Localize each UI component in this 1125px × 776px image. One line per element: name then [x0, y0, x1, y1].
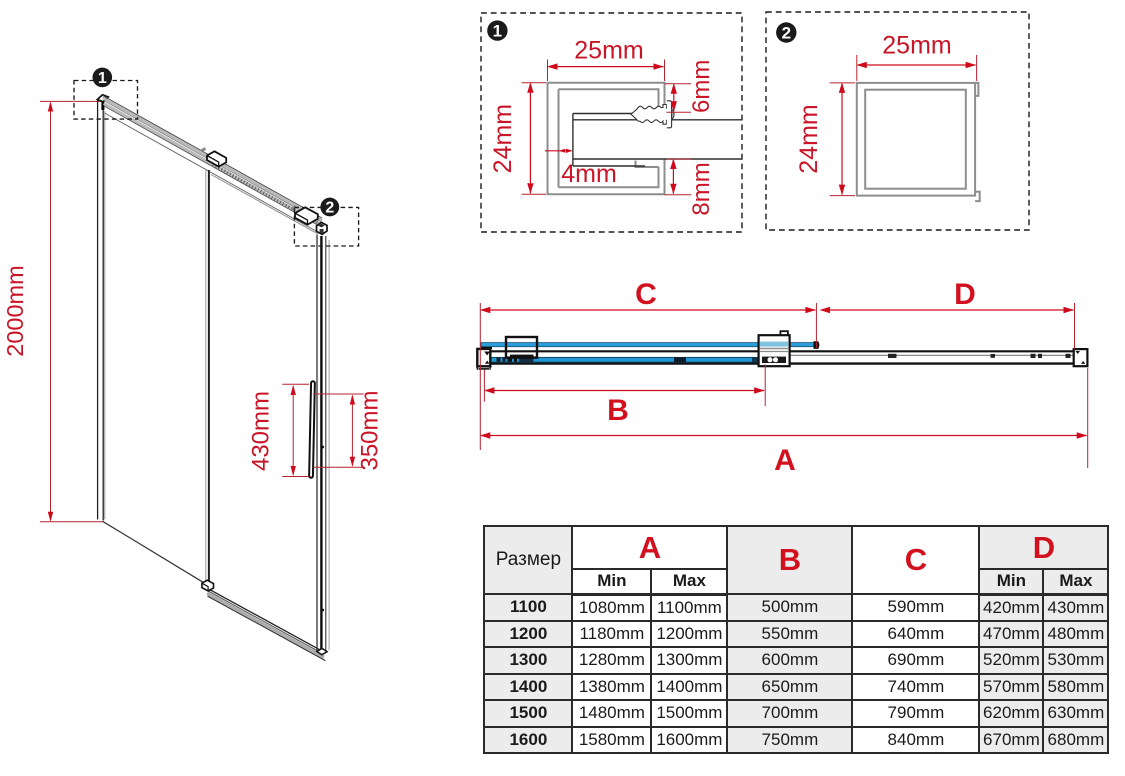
svg-text:C: C — [635, 278, 657, 311]
svg-text:B: B — [607, 394, 629, 427]
svg-text:25mm: 25mm — [882, 32, 951, 60]
svg-text:2: 2 — [782, 24, 791, 43]
svg-text:D: D — [954, 278, 976, 311]
svg-text:24mm: 24mm — [795, 104, 823, 173]
svg-text:350mm: 350mm — [357, 390, 384, 470]
svg-text:1: 1 — [98, 70, 107, 87]
svg-text:25mm: 25mm — [574, 37, 643, 65]
svg-text:2000mm: 2000mm — [2, 265, 28, 356]
svg-text:430mm: 430mm — [248, 391, 275, 471]
svg-text:A: A — [774, 444, 796, 477]
svg-text:24mm: 24mm — [489, 104, 517, 173]
svg-text:1: 1 — [493, 22, 502, 41]
svg-text:2: 2 — [325, 200, 334, 217]
svg-text:6mm: 6mm — [688, 60, 715, 113]
svg-text:8mm: 8mm — [688, 162, 715, 215]
svg-text:4mm: 4mm — [561, 160, 617, 188]
